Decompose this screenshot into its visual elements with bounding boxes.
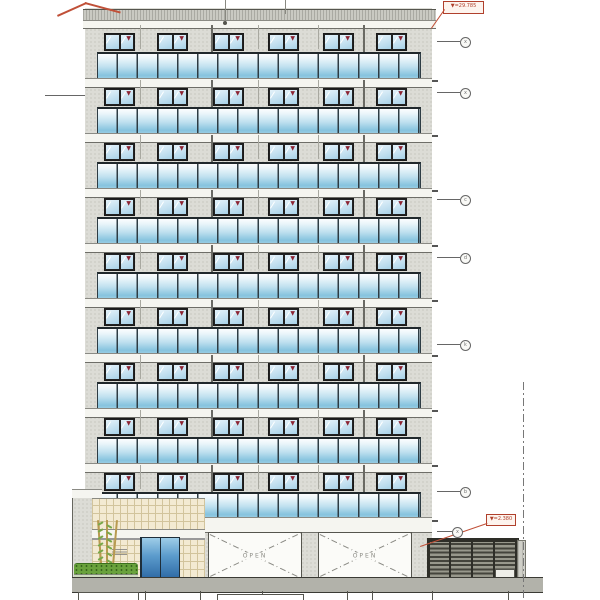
window-pane: ▼ xyxy=(393,310,406,324)
wall-joint xyxy=(258,355,259,379)
glass-reflection xyxy=(121,366,126,373)
window-pair: ▼ xyxy=(213,143,244,161)
window-pane xyxy=(106,200,119,214)
window-opening-mark: ▼ xyxy=(179,420,184,427)
glass-reflection xyxy=(230,311,235,318)
window-pane: ▼ xyxy=(340,35,353,49)
window-opening-mark: ▼ xyxy=(235,310,240,317)
glass-reflection xyxy=(121,91,126,98)
window-pane xyxy=(215,35,228,49)
window-pair: ▼ xyxy=(213,418,244,436)
glass-reflection xyxy=(106,146,111,153)
marker-leader xyxy=(437,92,460,93)
glass-reflection xyxy=(270,146,275,153)
window-opening-mark: ▼ xyxy=(235,200,240,207)
glass-reflection xyxy=(393,201,398,208)
window-opening-mark: ▼ xyxy=(398,365,403,372)
window-opening-mark: ▼ xyxy=(345,365,350,372)
entrance-doors xyxy=(140,537,180,579)
window-pane xyxy=(378,365,391,379)
glass-reflection xyxy=(121,476,126,483)
dimension-leader xyxy=(145,591,146,600)
window-pane: ▼ xyxy=(121,200,134,214)
glass-reflection xyxy=(325,421,330,428)
window-pane xyxy=(270,145,283,159)
window-pane: ▼ xyxy=(285,420,298,434)
glass-reflection xyxy=(215,366,220,373)
glass-reflection xyxy=(215,256,220,263)
glass-reflection xyxy=(106,476,111,483)
window-pane: ▼ xyxy=(393,145,406,159)
window-pane xyxy=(106,35,119,49)
drain-pipe xyxy=(363,25,365,52)
glass-reflection xyxy=(270,201,275,208)
window-opening-mark: ▼ xyxy=(126,255,131,262)
glass-reflection xyxy=(159,91,164,98)
window-opening-mark: ▼ xyxy=(345,475,350,482)
dimension-leader xyxy=(45,95,85,96)
window-pane xyxy=(159,145,172,159)
window-pane xyxy=(325,475,338,489)
window-pane: ▼ xyxy=(174,310,187,324)
balcony-glass-railing xyxy=(97,52,421,81)
window-opening-mark: ▼ xyxy=(179,365,184,372)
glass-reflection xyxy=(325,91,330,98)
window-opening-mark: ▼ xyxy=(398,420,403,427)
window-pane: ▼ xyxy=(174,90,187,104)
window-pane xyxy=(215,365,228,379)
window-pane: ▼ xyxy=(174,420,187,434)
window-pane: ▼ xyxy=(285,90,298,104)
glass-reflection xyxy=(270,311,275,318)
window-opening-mark: ▼ xyxy=(290,35,295,42)
fence-post xyxy=(428,539,430,577)
glass-reflection xyxy=(340,256,345,263)
window-opening-mark: ▼ xyxy=(290,255,295,262)
site-boundary-line xyxy=(523,382,524,600)
window-pane: ▼ xyxy=(393,365,406,379)
window-pane xyxy=(378,200,391,214)
window-pane: ▼ xyxy=(340,90,353,104)
window-pair: ▼ xyxy=(268,143,299,161)
glass-reflection xyxy=(285,146,290,153)
window-pair: ▼ xyxy=(376,143,407,161)
window-pane: ▼ xyxy=(230,35,243,49)
wall-joint xyxy=(318,410,319,434)
window-opening-mark: ▼ xyxy=(398,255,403,262)
window-opening-mark: ▼ xyxy=(290,90,295,97)
window-pane xyxy=(159,365,172,379)
window-pane: ▼ xyxy=(121,420,134,434)
window-opening-mark: ▼ xyxy=(126,145,131,152)
window-pane: ▼ xyxy=(393,475,406,489)
window-pair: ▼ xyxy=(157,33,188,51)
wall-joint xyxy=(140,300,141,324)
window-pane xyxy=(270,200,283,214)
dimension-leader xyxy=(432,591,433,600)
window-pane xyxy=(215,90,228,104)
window-pane xyxy=(378,90,391,104)
glass-reflection xyxy=(230,256,235,263)
glass-reflection xyxy=(378,201,383,208)
marker-leader xyxy=(437,199,460,200)
window-pane xyxy=(325,145,338,159)
glass-reflection xyxy=(121,256,126,263)
window-pane: ▼ xyxy=(121,35,134,49)
window-pair: ▼ xyxy=(323,473,354,491)
glass-reflection xyxy=(174,201,179,208)
glass-reflection xyxy=(230,146,235,153)
window-pane xyxy=(270,365,283,379)
window-pair: ▼ xyxy=(268,308,299,326)
window-pane xyxy=(159,310,172,324)
window-opening-mark: ▼ xyxy=(126,90,131,97)
window-pane xyxy=(215,420,228,434)
reference-marker: k xyxy=(460,340,471,351)
window-pane xyxy=(325,200,338,214)
balcony-glass-mullions xyxy=(98,439,420,465)
slab-tick xyxy=(432,190,438,192)
glass-reflection xyxy=(121,311,126,318)
window-pair: ▼ xyxy=(376,33,407,51)
window-pane: ▼ xyxy=(174,255,187,269)
glass-reflection xyxy=(174,146,179,153)
glass-reflection xyxy=(270,91,275,98)
window-pane xyxy=(378,35,391,49)
wall-joint xyxy=(258,300,259,324)
window-pane xyxy=(325,255,338,269)
glass-reflection xyxy=(215,91,220,98)
marker-leader xyxy=(437,491,460,492)
reference-marker: x xyxy=(452,527,463,538)
slab-tick xyxy=(432,410,438,412)
glass-reflection xyxy=(285,36,290,43)
slab-tick xyxy=(432,300,438,302)
window-opening-mark: ▼ xyxy=(345,420,350,427)
glass-reflection xyxy=(121,421,126,428)
window-pane: ▼ xyxy=(340,365,353,379)
window-opening-mark: ▼ xyxy=(179,145,184,152)
dimension-leader xyxy=(372,591,373,600)
window-pair: ▼ xyxy=(157,473,188,491)
window-opening-mark: ▼ xyxy=(179,200,184,207)
window-pair: ▼ xyxy=(104,143,135,161)
wall-joint xyxy=(258,245,259,269)
glass-reflection xyxy=(159,256,164,263)
glass-reflection xyxy=(393,256,398,263)
fence-post xyxy=(471,539,473,577)
slab-tick xyxy=(432,465,438,467)
drain-pipe xyxy=(363,135,365,162)
window-pane: ▼ xyxy=(285,200,298,214)
window-pane: ▼ xyxy=(230,365,243,379)
window-pair: ▼ xyxy=(157,253,188,271)
glass-reflection xyxy=(106,201,111,208)
window-pair: ▼ xyxy=(104,88,135,106)
window-opening-mark: ▼ xyxy=(345,35,350,42)
window-pair: ▼ xyxy=(323,418,354,436)
entrance-door-leaf xyxy=(161,538,179,578)
window-pair: ▼ xyxy=(157,308,188,326)
window-pane: ▼ xyxy=(230,200,243,214)
window-pair: ▼ xyxy=(268,363,299,381)
glass-reflection xyxy=(285,421,290,428)
glass-reflection xyxy=(325,366,330,373)
garage-opening: OPEN xyxy=(318,532,412,579)
balcony-glass-mullions xyxy=(98,329,420,355)
glass-reflection xyxy=(106,366,111,373)
glass-reflection xyxy=(378,146,383,153)
window-pane xyxy=(159,475,172,489)
window-pane: ▼ xyxy=(393,200,406,214)
glass-reflection xyxy=(325,201,330,208)
window-opening-mark: ▼ xyxy=(235,35,240,42)
wall-joint xyxy=(258,135,259,159)
glass-reflection xyxy=(159,201,164,208)
window-pane: ▼ xyxy=(230,475,243,489)
window-pane: ▼ xyxy=(340,255,353,269)
wall-joint xyxy=(318,355,319,379)
balcony-glass-mullions xyxy=(98,54,420,80)
window-pane: ▼ xyxy=(174,35,187,49)
window-opening-mark: ▼ xyxy=(290,420,295,427)
window-opening-mark: ▼ xyxy=(179,35,184,42)
glass-reflection xyxy=(159,476,164,483)
drain-pipe xyxy=(363,300,365,327)
window-pane: ▼ xyxy=(393,35,406,49)
window-opening-mark: ▼ xyxy=(345,310,350,317)
garage-lintel xyxy=(205,517,432,533)
glass-reflection xyxy=(230,91,235,98)
window-pair: ▼ xyxy=(323,253,354,271)
drain-pipe xyxy=(363,245,365,272)
window-pair: ▼ xyxy=(213,473,244,491)
window-pane: ▼ xyxy=(393,420,406,434)
roof-leader xyxy=(225,0,226,22)
window-pane xyxy=(270,255,283,269)
glass-reflection xyxy=(393,91,398,98)
window-pair: ▼ xyxy=(376,308,407,326)
balcony-glass-railing xyxy=(97,162,421,191)
window-pane: ▼ xyxy=(285,35,298,49)
glass-reflection xyxy=(378,476,383,483)
window-pair: ▼ xyxy=(104,363,135,381)
parapet-cap xyxy=(83,20,436,29)
wall-joint xyxy=(318,135,319,159)
window-opening-mark: ▼ xyxy=(290,310,295,317)
glass-reflection xyxy=(393,146,398,153)
glass-reflection xyxy=(270,421,275,428)
glass-reflection xyxy=(230,421,235,428)
entrance-door-leaf xyxy=(142,538,160,578)
glass-reflection xyxy=(215,476,220,483)
window-pair: ▼ xyxy=(157,143,188,161)
glass-reflection xyxy=(159,36,164,43)
window-pane: ▼ xyxy=(340,200,353,214)
marker-leader xyxy=(437,531,452,532)
open-label: OPEN xyxy=(351,552,380,559)
window-opening-mark: ▼ xyxy=(235,475,240,482)
window-opening-mark: ▼ xyxy=(235,145,240,152)
glass-reflection xyxy=(270,36,275,43)
window-opening-mark: ▼ xyxy=(398,35,403,42)
glass-reflection xyxy=(159,421,164,428)
glass-reflection xyxy=(340,311,345,318)
glass-reflection xyxy=(230,476,235,483)
window-opening-mark: ▼ xyxy=(398,90,403,97)
window-pane xyxy=(325,35,338,49)
window-opening-mark: ▼ xyxy=(126,310,131,317)
glass-reflection xyxy=(340,146,345,153)
window-pane: ▼ xyxy=(230,420,243,434)
drain-pipe xyxy=(363,465,365,492)
window-pane xyxy=(159,35,172,49)
window-pair: ▼ xyxy=(268,473,299,491)
dimension-leader xyxy=(508,591,509,600)
window-opening-mark: ▼ xyxy=(235,255,240,262)
glass-reflection xyxy=(285,91,290,98)
marker-leader xyxy=(437,344,460,345)
balcony-glass-mullions xyxy=(98,219,420,245)
window-pane xyxy=(159,420,172,434)
window-opening-mark: ▼ xyxy=(235,365,240,372)
glass-reflection xyxy=(106,311,111,318)
balcony-glass-mullions xyxy=(98,109,420,135)
glass-reflection xyxy=(174,476,179,483)
glass-reflection xyxy=(121,146,126,153)
window-opening-mark: ▼ xyxy=(290,200,295,207)
window-pane xyxy=(325,365,338,379)
window-opening-mark: ▼ xyxy=(126,35,131,42)
glass-reflection xyxy=(378,36,383,43)
window-pane: ▼ xyxy=(285,310,298,324)
glass-reflection xyxy=(230,366,235,373)
window-pane xyxy=(270,90,283,104)
window-pane: ▼ xyxy=(393,90,406,104)
window-pane: ▼ xyxy=(174,145,187,159)
glass-reflection xyxy=(215,146,220,153)
dimension-leader xyxy=(200,591,201,600)
wall-joint xyxy=(258,25,259,49)
window-opening-mark: ▼ xyxy=(235,420,240,427)
window-pair: ▼ xyxy=(157,198,188,216)
glass-reflection xyxy=(161,538,179,550)
level-label-bottom: ▼=2.380 xyxy=(486,514,516,526)
balcony-glass-railing xyxy=(97,107,421,136)
window-opening-mark: ▼ xyxy=(290,145,295,152)
wall-joint xyxy=(140,355,141,379)
drain-pipe xyxy=(363,410,365,437)
window-pair: ▼ xyxy=(376,473,407,491)
slab-tick xyxy=(432,520,438,522)
elevation-drawing-canvas: ▼▼▼▼▼▼▼▼▼▼▼▼▼▼▼▼▼▼▼▼▼▼▼▼▼▼▼▼▼▼▼▼▼▼▼▼▼▼▼▼… xyxy=(0,0,600,600)
glass-reflection xyxy=(142,538,160,550)
balcony-glass-mullions xyxy=(98,164,420,190)
window-pane: ▼ xyxy=(285,365,298,379)
glass-reflection xyxy=(325,256,330,263)
glass-reflection xyxy=(106,256,111,263)
marker-leader xyxy=(437,41,460,42)
glass-reflection xyxy=(174,256,179,263)
window-pane: ▼ xyxy=(121,90,134,104)
window-pane: ▼ xyxy=(230,90,243,104)
window-pair: ▼ xyxy=(104,473,135,491)
window-pane xyxy=(215,145,228,159)
window-opening-mark: ▼ xyxy=(126,200,131,207)
glass-reflection xyxy=(230,36,235,43)
window-pair: ▼ xyxy=(104,198,135,216)
cutoff-label-box xyxy=(217,594,304,600)
window-pane: ▼ xyxy=(174,475,187,489)
glass-reflection xyxy=(215,36,220,43)
window-pane: ▼ xyxy=(340,475,353,489)
glass-reflection xyxy=(340,476,345,483)
window-pane: ▼ xyxy=(340,310,353,324)
wall-joint xyxy=(318,465,319,489)
slab-tick xyxy=(432,355,438,357)
slab-tick xyxy=(432,80,438,82)
window-pane: ▼ xyxy=(340,420,353,434)
window-pair: ▼ xyxy=(104,33,135,51)
window-pane xyxy=(378,310,391,324)
window-pane: ▼ xyxy=(285,255,298,269)
glass-reflection xyxy=(174,91,179,98)
wall-joint xyxy=(140,190,141,214)
window-pair: ▼ xyxy=(157,88,188,106)
reference-marker: c xyxy=(460,195,471,206)
reference-marker: x xyxy=(460,37,471,48)
window-pair: ▼ xyxy=(376,363,407,381)
window-pane: ▼ xyxy=(121,310,134,324)
window-pane: ▼ xyxy=(121,145,134,159)
window-pane xyxy=(325,310,338,324)
glass-reflection xyxy=(270,366,275,373)
window-pane xyxy=(159,90,172,104)
balcony-glass-railing xyxy=(97,327,421,356)
dimension-leader xyxy=(347,591,348,600)
roof-leader-dot xyxy=(223,21,227,25)
window-pair: ▼ xyxy=(213,308,244,326)
window-pair: ▼ xyxy=(104,308,135,326)
window-pair: ▼ xyxy=(213,363,244,381)
glass-reflection xyxy=(106,91,111,98)
window-opening-mark: ▼ xyxy=(179,475,184,482)
window-opening-mark: ▼ xyxy=(126,365,131,372)
window-opening-mark: ▼ xyxy=(179,310,184,317)
wall-joint xyxy=(140,465,141,489)
window-pane xyxy=(378,255,391,269)
glass-reflection xyxy=(325,476,330,483)
window-pair: ▼ xyxy=(104,418,135,436)
glass-reflection xyxy=(340,201,345,208)
window-pair: ▼ xyxy=(268,33,299,51)
window-pane xyxy=(106,90,119,104)
window-opening-mark: ▼ xyxy=(398,475,403,482)
window-pair: ▼ xyxy=(323,88,354,106)
window-pair: ▼ xyxy=(157,363,188,381)
glass-reflection xyxy=(121,201,126,208)
window-pane: ▼ xyxy=(174,200,187,214)
wall-joint xyxy=(258,190,259,214)
window-opening-mark: ▼ xyxy=(345,255,350,262)
window-opening-mark: ▼ xyxy=(126,420,131,427)
window-pane xyxy=(215,475,228,489)
window-pair: ▼ xyxy=(213,88,244,106)
window-pane: ▼ xyxy=(285,475,298,489)
reference-marker: d xyxy=(460,253,471,264)
glass-reflection xyxy=(215,201,220,208)
reference-marker: b xyxy=(460,487,471,498)
